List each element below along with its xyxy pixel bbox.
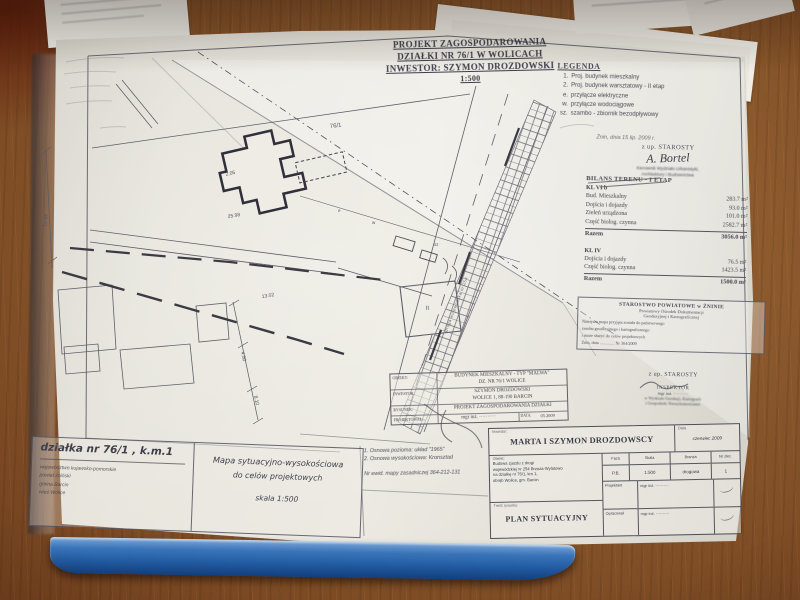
signature-squiggle bbox=[640, 382, 688, 389]
scribble-mark bbox=[424, 404, 482, 448]
handwriting-overlay bbox=[0, 0, 800, 600]
strike-mark bbox=[588, 178, 666, 187]
photo-scene: 2.05 25.98 13.02 4.50 8.10 49.01 76/1 II… bbox=[0, 0, 800, 600]
